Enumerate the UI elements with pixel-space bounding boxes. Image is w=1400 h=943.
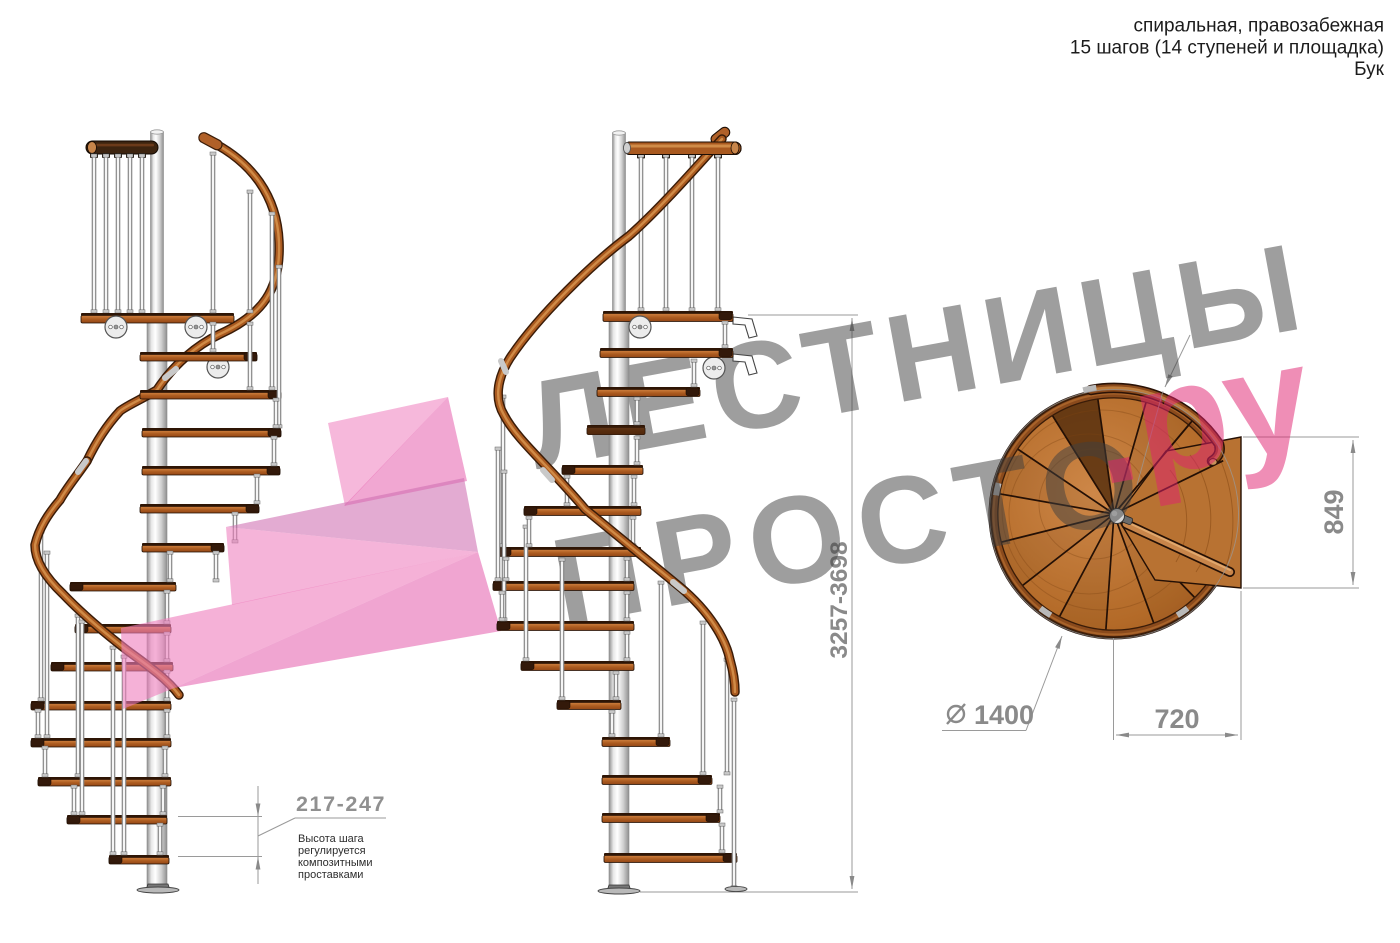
svg-text:композитными: композитными [298,857,372,869]
svg-text:1400: 1400 [974,700,1034,730]
svg-text:720: 720 [1154,704,1199,734]
svg-text:Бук: Бук [1354,59,1385,80]
svg-text:849: 849 [1319,489,1349,534]
svg-text:проставками: проставками [298,869,363,881]
svg-text:регулируется: регулируется [298,845,366,857]
svg-text:217-247: 217-247 [296,792,386,816]
svg-text:15 шагов (14 ступеней и площад: 15 шагов (14 ступеней и площадка) [1070,38,1384,59]
svg-text:спиральная, правозабежная: спиральная, правозабежная [1134,16,1384,37]
svg-text:Высота шага: Высота шага [298,833,365,845]
